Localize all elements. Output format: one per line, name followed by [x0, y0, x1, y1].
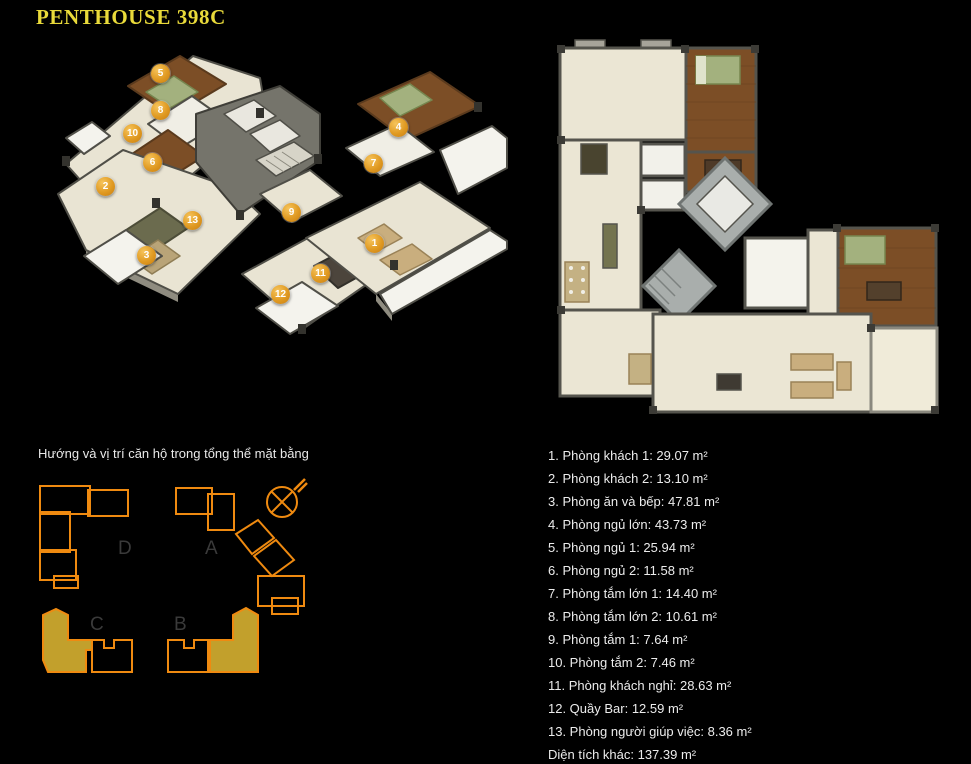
room-area-item-10: 10. Phòng tắm 2: 7.46 m²: [548, 651, 752, 674]
block-label-c: C: [90, 614, 104, 635]
kitchen-counter: [603, 224, 617, 268]
room-area-item-4: 4. Phòng ngủ lớn: 43.73 m²: [548, 513, 752, 536]
plan-badge-10: 10: [123, 124, 142, 143]
plan-badge-5: 5: [151, 64, 170, 83]
room-area-item-13: 13. Phòng người giúp việc: 8.36 m²: [548, 720, 752, 743]
upper-left-rooms: [560, 40, 686, 140]
isometric-floor-plan: [28, 42, 508, 372]
top-down-floor-plan: [545, 36, 945, 426]
block-label-d: D: [118, 538, 132, 559]
block-label-a: A: [205, 538, 218, 559]
dining-table: [565, 262, 589, 302]
bathroom-floor: [641, 144, 685, 176]
sofa: [791, 382, 833, 398]
plan-badge-3: 3: [137, 246, 156, 265]
room-area-list: 1. Phòng khách 1: 29.07 m² 2. Phòng khác…: [548, 444, 752, 764]
room-area-item-7: 7. Phòng tắm lớn 1: 14.40 m²: [548, 582, 752, 605]
room-area-item-1: 1. Phòng khách 1: 29.07 m²: [548, 444, 752, 467]
plan-badge-8: 8: [151, 101, 170, 120]
plan-badge-6: 6: [143, 153, 162, 172]
kitchen-block: [581, 144, 607, 174]
block-b-unit-outline: [168, 640, 208, 672]
plan-badge-7: 7: [364, 154, 383, 173]
bed: [845, 236, 885, 264]
site-plan-caption: Hướng và vị trí căn hộ trong tổng thể mặ…: [38, 446, 309, 461]
armchair: [837, 362, 851, 390]
plan-badge-1: 1: [365, 234, 384, 253]
room-area-item-2: 2. Phòng khách 2: 13.10 m²: [548, 467, 752, 490]
site-plan: D A C B: [28, 472, 318, 680]
plan-badge-13: 13: [183, 211, 202, 230]
room-area-item-9: 9. Phòng tắm 1: 7.64 m²: [548, 628, 752, 651]
plan-badge-12: 12: [271, 285, 290, 304]
block-label-b: B: [174, 614, 187, 635]
plan-badge-9: 9: [282, 203, 301, 222]
room-area-item-5: 5. Phòng ngủ 1: 25.94 m²: [548, 536, 752, 559]
mid-bathrooms: [641, 144, 685, 210]
sofa: [791, 354, 833, 370]
pillows: [696, 56, 706, 84]
room-area-item-11: 11. Phòng khách nghỉ: 28.63 m²: [548, 674, 752, 697]
room-area-item-3: 3. Phòng ăn và bếp: 47.81 m²: [548, 490, 752, 513]
desk: [867, 282, 901, 300]
block-d-outline: [40, 486, 128, 588]
living-room-2-floor: [560, 48, 686, 140]
left-wing-kitchen: [560, 140, 641, 310]
corridor: [808, 230, 838, 322]
room-area-item-other: Diện tích khác: 137.39 m²: [548, 743, 752, 764]
penthouse-brochure-page: PENTHOUSE 398C: [0, 0, 971, 764]
bottom-right-balcony: [871, 328, 937, 412]
room-area-item-6: 6. Phòng ngủ 2: 11.58 m²: [548, 559, 752, 582]
block-a-outline: [176, 488, 304, 614]
plan-badge-4: 4: [389, 118, 408, 137]
block-c-highlight: [43, 609, 132, 672]
living-dining-bottom: [560, 310, 871, 412]
room-area-item-12: 12. Quầy Bar: 12.59 m²: [548, 697, 752, 720]
block-c-unit-outline: [92, 640, 132, 672]
terrace: [440, 126, 507, 194]
right-upper-wing: [346, 72, 507, 194]
table: [629, 354, 651, 384]
desk: [717, 374, 741, 390]
block-b-filled: [210, 608, 258, 672]
plan-badge-11: 11: [311, 264, 330, 283]
plan-badge-2: 2: [96, 177, 115, 196]
compass-icon: [267, 479, 307, 517]
block-c-filled: [43, 609, 92, 672]
room-area-item-8: 8. Phòng tắm lớn 2: 10.61 m²: [548, 605, 752, 628]
right-bedroom-wing: [808, 228, 936, 326]
page-title: PENTHOUSE 398C: [36, 5, 226, 30]
